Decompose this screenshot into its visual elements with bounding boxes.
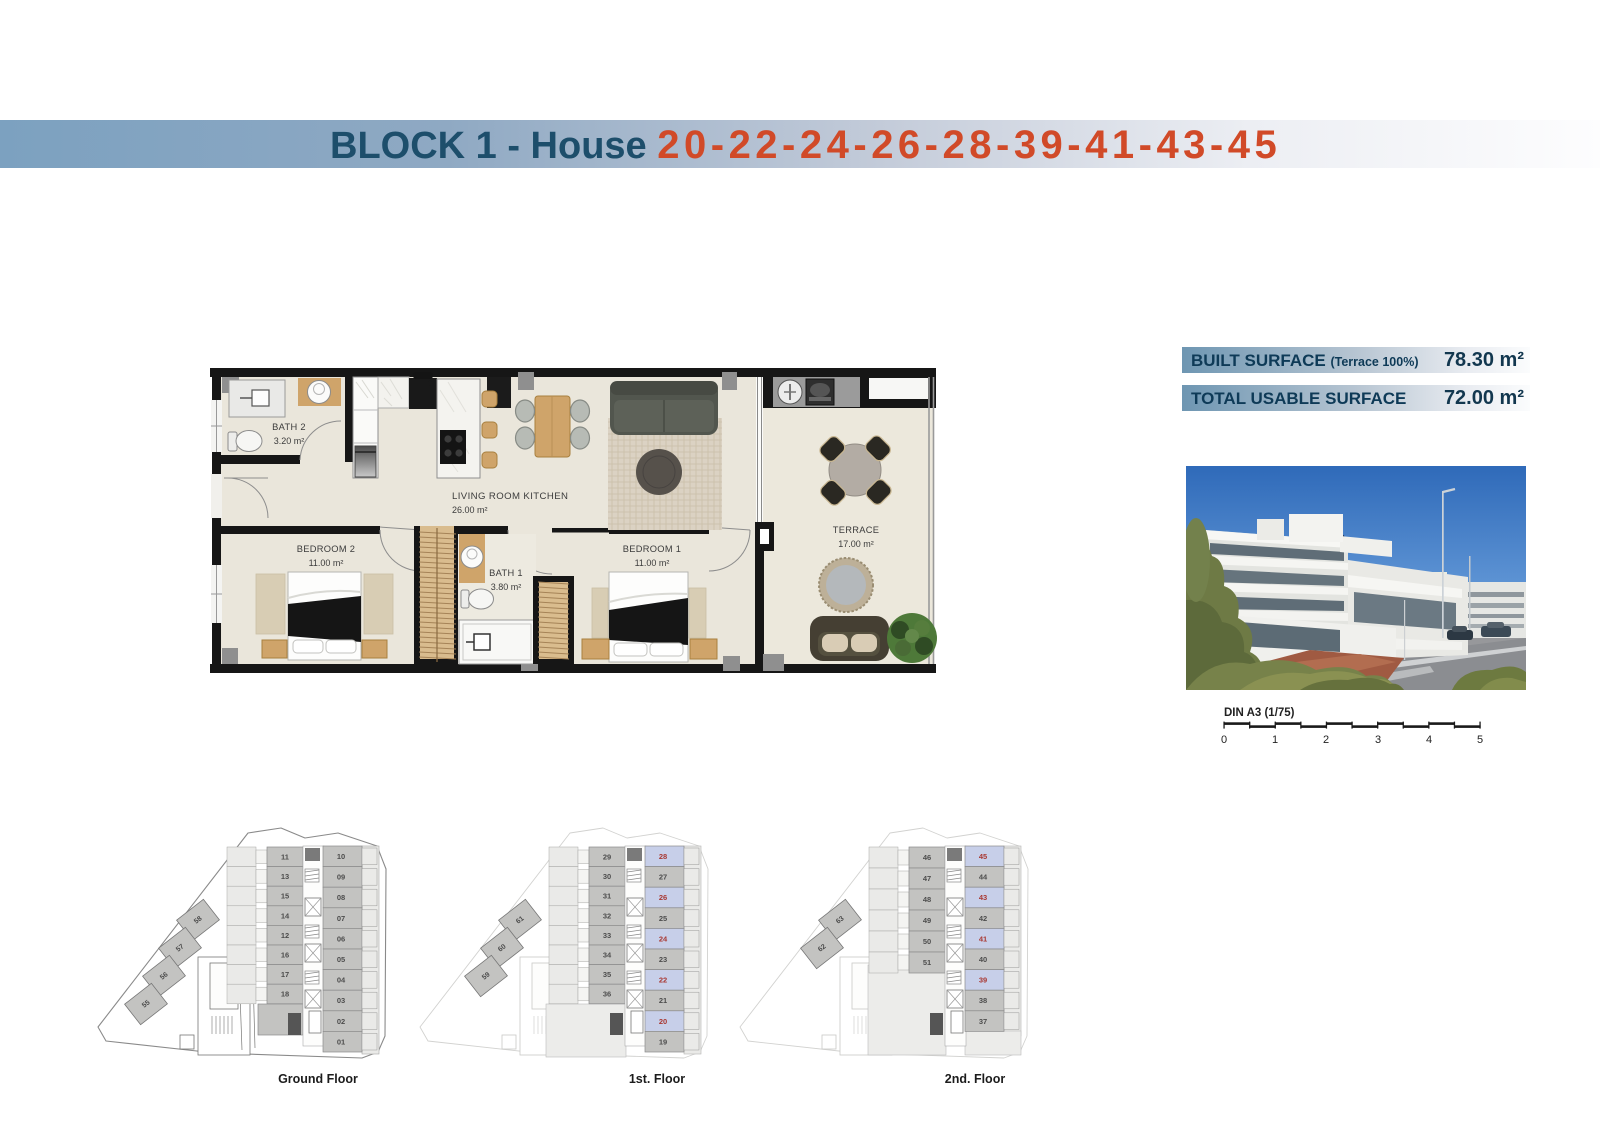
svg-text:17: 17	[281, 970, 289, 979]
svg-text:27: 27	[659, 873, 667, 882]
svg-text:11: 11	[281, 853, 289, 862]
svg-text:07: 07	[337, 914, 345, 923]
svg-text:BLOCK 1 - House 20-22-24-26-28: BLOCK 1 - House 20-22-24-26-28-39-41-43-…	[330, 123, 1281, 167]
svg-text:45: 45	[979, 852, 987, 861]
svg-text:03: 03	[337, 996, 345, 1005]
svg-text:DIN A3 (1/75): DIN A3 (1/75)	[1224, 707, 1295, 719]
svg-text:15: 15	[281, 892, 289, 901]
svg-text:78.30 m²: 78.30 m²	[1444, 349, 1524, 371]
svg-text:26.00 m²: 26.00 m²	[452, 505, 488, 515]
svg-text:28: 28	[659, 852, 667, 861]
svg-text:5: 5	[1477, 734, 1483, 746]
svg-text:05: 05	[337, 955, 345, 964]
svg-text:18: 18	[281, 990, 289, 999]
svg-text:3.20 m²: 3.20 m²	[274, 436, 305, 446]
svg-text:25: 25	[659, 914, 667, 923]
svg-text:30: 30	[603, 872, 611, 881]
svg-text:06: 06	[337, 934, 345, 943]
svg-text:1: 1	[1272, 734, 1278, 746]
svg-text:BATH 1: BATH 1	[489, 568, 523, 578]
svg-text:22: 22	[659, 976, 667, 985]
svg-text:47: 47	[923, 874, 931, 883]
svg-text:38: 38	[979, 996, 987, 1005]
svg-text:04: 04	[337, 976, 346, 985]
svg-text:17.00 m²: 17.00 m²	[838, 539, 874, 549]
svg-text:2nd. Floor: 2nd. Floor	[945, 1072, 1006, 1086]
svg-text:2: 2	[1323, 734, 1329, 746]
svg-text:3.80 m²: 3.80 m²	[491, 582, 522, 592]
svg-text:BATH 2: BATH 2	[272, 422, 306, 432]
svg-text:BEDROOM 1: BEDROOM 1	[623, 544, 682, 554]
svg-text:14: 14	[281, 911, 290, 920]
svg-text:20: 20	[659, 1017, 667, 1026]
svg-text:16: 16	[281, 951, 289, 960]
svg-text:37: 37	[979, 1017, 987, 1026]
svg-text:01: 01	[337, 1037, 345, 1046]
svg-text:11.00 m²: 11.00 m²	[635, 558, 670, 568]
svg-text:31: 31	[603, 892, 611, 901]
svg-text:19: 19	[659, 1037, 667, 1046]
svg-text:49: 49	[923, 916, 931, 925]
svg-text:02: 02	[337, 1017, 345, 1026]
svg-text:29: 29	[603, 853, 611, 862]
svg-text:44: 44	[979, 873, 988, 882]
svg-text:51: 51	[923, 958, 931, 967]
svg-text:40: 40	[979, 955, 987, 964]
svg-text:4: 4	[1426, 734, 1432, 746]
svg-text:34: 34	[603, 951, 612, 960]
svg-text:09: 09	[337, 873, 345, 882]
svg-text:Ground Floor: Ground Floor	[278, 1072, 358, 1086]
svg-text:21: 21	[659, 996, 667, 1005]
svg-text:72.00 m²: 72.00 m²	[1444, 387, 1524, 409]
svg-text:39: 39	[979, 976, 987, 985]
svg-text:08: 08	[337, 893, 345, 902]
svg-text:LIVING ROOM KITCHEN: LIVING ROOM KITCHEN	[452, 491, 568, 502]
svg-text:43: 43	[979, 893, 987, 902]
svg-text:41: 41	[979, 934, 987, 943]
svg-text:TERRACE: TERRACE	[833, 525, 880, 535]
svg-text:13: 13	[281, 872, 289, 881]
svg-text:32: 32	[603, 911, 611, 920]
svg-text:35: 35	[603, 970, 611, 979]
svg-text:23: 23	[659, 955, 667, 964]
svg-text:0: 0	[1221, 734, 1227, 746]
svg-text:24: 24	[659, 934, 668, 943]
svg-text:48: 48	[923, 895, 931, 904]
svg-text:11.00 m²: 11.00 m²	[309, 558, 344, 568]
svg-text:33: 33	[603, 931, 611, 940]
svg-text:BEDROOM 2: BEDROOM 2	[297, 544, 356, 554]
svg-text:10: 10	[337, 852, 345, 861]
svg-text:12: 12	[281, 931, 289, 940]
svg-text:TOTAL USABLE SURFACE: TOTAL USABLE SURFACE	[1191, 389, 1406, 408]
svg-text:50: 50	[923, 937, 931, 946]
svg-text:36: 36	[603, 990, 611, 999]
svg-text:3: 3	[1375, 734, 1381, 746]
svg-text:26: 26	[659, 893, 667, 902]
svg-text:1st. Floor: 1st. Floor	[629, 1072, 685, 1086]
svg-text:46: 46	[923, 853, 931, 862]
svg-text:42: 42	[979, 914, 987, 923]
